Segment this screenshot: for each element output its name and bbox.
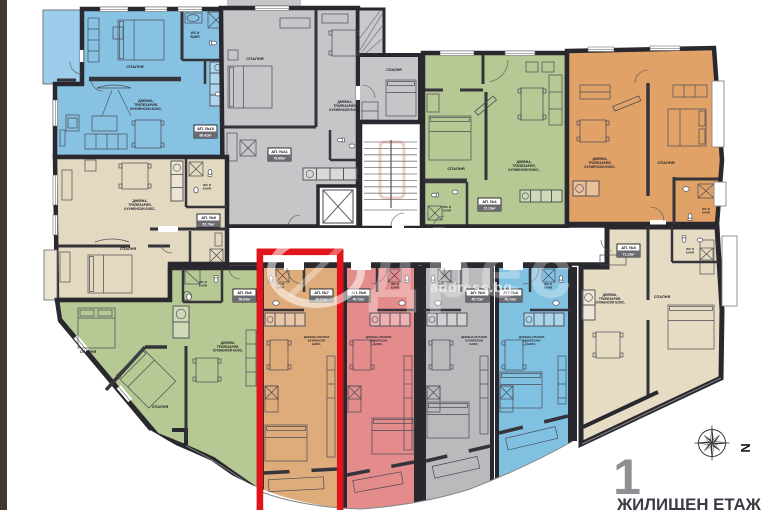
svg-text:СПАЛНЯ: СПАЛНЯ bbox=[386, 68, 402, 72]
svg-text:71.13м²: 71.13м² bbox=[622, 252, 635, 256]
svg-text:76.85м²: 76.85м² bbox=[273, 156, 286, 160]
svg-text:БОКС,: БОКС, bbox=[374, 342, 383, 346]
svg-text:СПАЛНЯ: СПАЛНЯ bbox=[152, 405, 169, 409]
svg-text:БОКС,: БОКС, bbox=[470, 342, 479, 346]
svg-text:СПАЛНЯ: СПАЛНЯ bbox=[246, 56, 263, 61]
svg-text:БАНЯ: БАНЯ bbox=[443, 209, 452, 213]
svg-text:КУХНЕНСКИ БОКС,: КУХНЕНСКИ БОКС, bbox=[124, 207, 155, 211]
svg-text:КУХНЕНСКИ БОКС,: КУХНЕНСКИ БОКС, bbox=[130, 107, 162, 111]
svg-text:БАНЯ: БАНЯ bbox=[203, 187, 212, 191]
svg-text:52.70м²: 52.70м² bbox=[202, 222, 215, 226]
svg-text:АП. №6: АП. №6 bbox=[237, 290, 252, 295]
svg-text:КУХНЕНСКИ БОКС,: КУХНЕНСКИ БОКС, bbox=[329, 108, 360, 112]
svg-text:АП. №1: АП. №1 bbox=[482, 199, 497, 204]
svg-text:КУХНЕНСКИ БОКС,: КУХНЕНСКИ БОКС, bbox=[213, 349, 243, 353]
svg-text:СПАЛНЯ: СПАЛНЯ bbox=[80, 350, 97, 354]
svg-text:АП. №9: АП. №9 bbox=[201, 215, 216, 220]
svg-text:СПАЛНЯ: СПАЛНЯ bbox=[657, 160, 674, 165]
svg-text:АП. №11: АП. №11 bbox=[271, 149, 288, 154]
svg-text:БАНЯ: БАНЯ bbox=[190, 35, 200, 39]
svg-text:58.63м²: 58.63м² bbox=[238, 297, 251, 301]
svg-text:БАНЯ: БАНЯ bbox=[199, 284, 207, 288]
svg-text:СПАЛНЯ: СПАЛНЯ bbox=[447, 166, 464, 171]
svg-text:БАНЯ: БАНЯ bbox=[702, 211, 710, 215]
svg-text:СПАЛНЯ: СПАЛНЯ bbox=[120, 247, 137, 251]
svg-text:СПАЛНЯ: СПАЛНЯ bbox=[126, 64, 143, 69]
svg-text:АП. №10: АП. №10 bbox=[197, 126, 215, 131]
svg-text:КУХНЕНСКИ БОКС,: КУХНЕНСКИ БОКС, bbox=[584, 165, 615, 169]
svg-text:N: N bbox=[738, 443, 753, 452]
svg-text:address.bg: address.bg bbox=[430, 279, 513, 295]
svg-text:72.13м²: 72.13м² bbox=[483, 206, 496, 210]
svg-text:БАНЯ: БАНЯ bbox=[686, 251, 694, 255]
svg-text:АП. №3: АП. №3 bbox=[621, 245, 636, 250]
svg-text:АП. №7: АП. №7 bbox=[314, 290, 329, 295]
svg-text:СПАЛНЯ: СПАЛНЯ bbox=[654, 295, 671, 299]
svg-text:68.41м²: 68.41м² bbox=[199, 133, 212, 137]
svg-text:БОКС,: БОКС, bbox=[527, 342, 536, 346]
svg-text:45.72м²: 45.72м² bbox=[352, 297, 365, 301]
svg-text:ЖИЛИЩЕН ЕТАЖ: ЖИЛИЩЕН ЕТАЖ bbox=[616, 495, 762, 510]
svg-text:дрес: дрес bbox=[368, 226, 579, 314]
svg-text:КУХНЕНСКИ БОКС,: КУХНЕНСКИ БОКС, bbox=[508, 168, 539, 172]
svg-text:КУХНЕНСКИ БОКС,: КУХНЕНСКИ БОКС, bbox=[595, 301, 625, 305]
svg-text:БОКС,: БОКС, bbox=[312, 342, 321, 346]
